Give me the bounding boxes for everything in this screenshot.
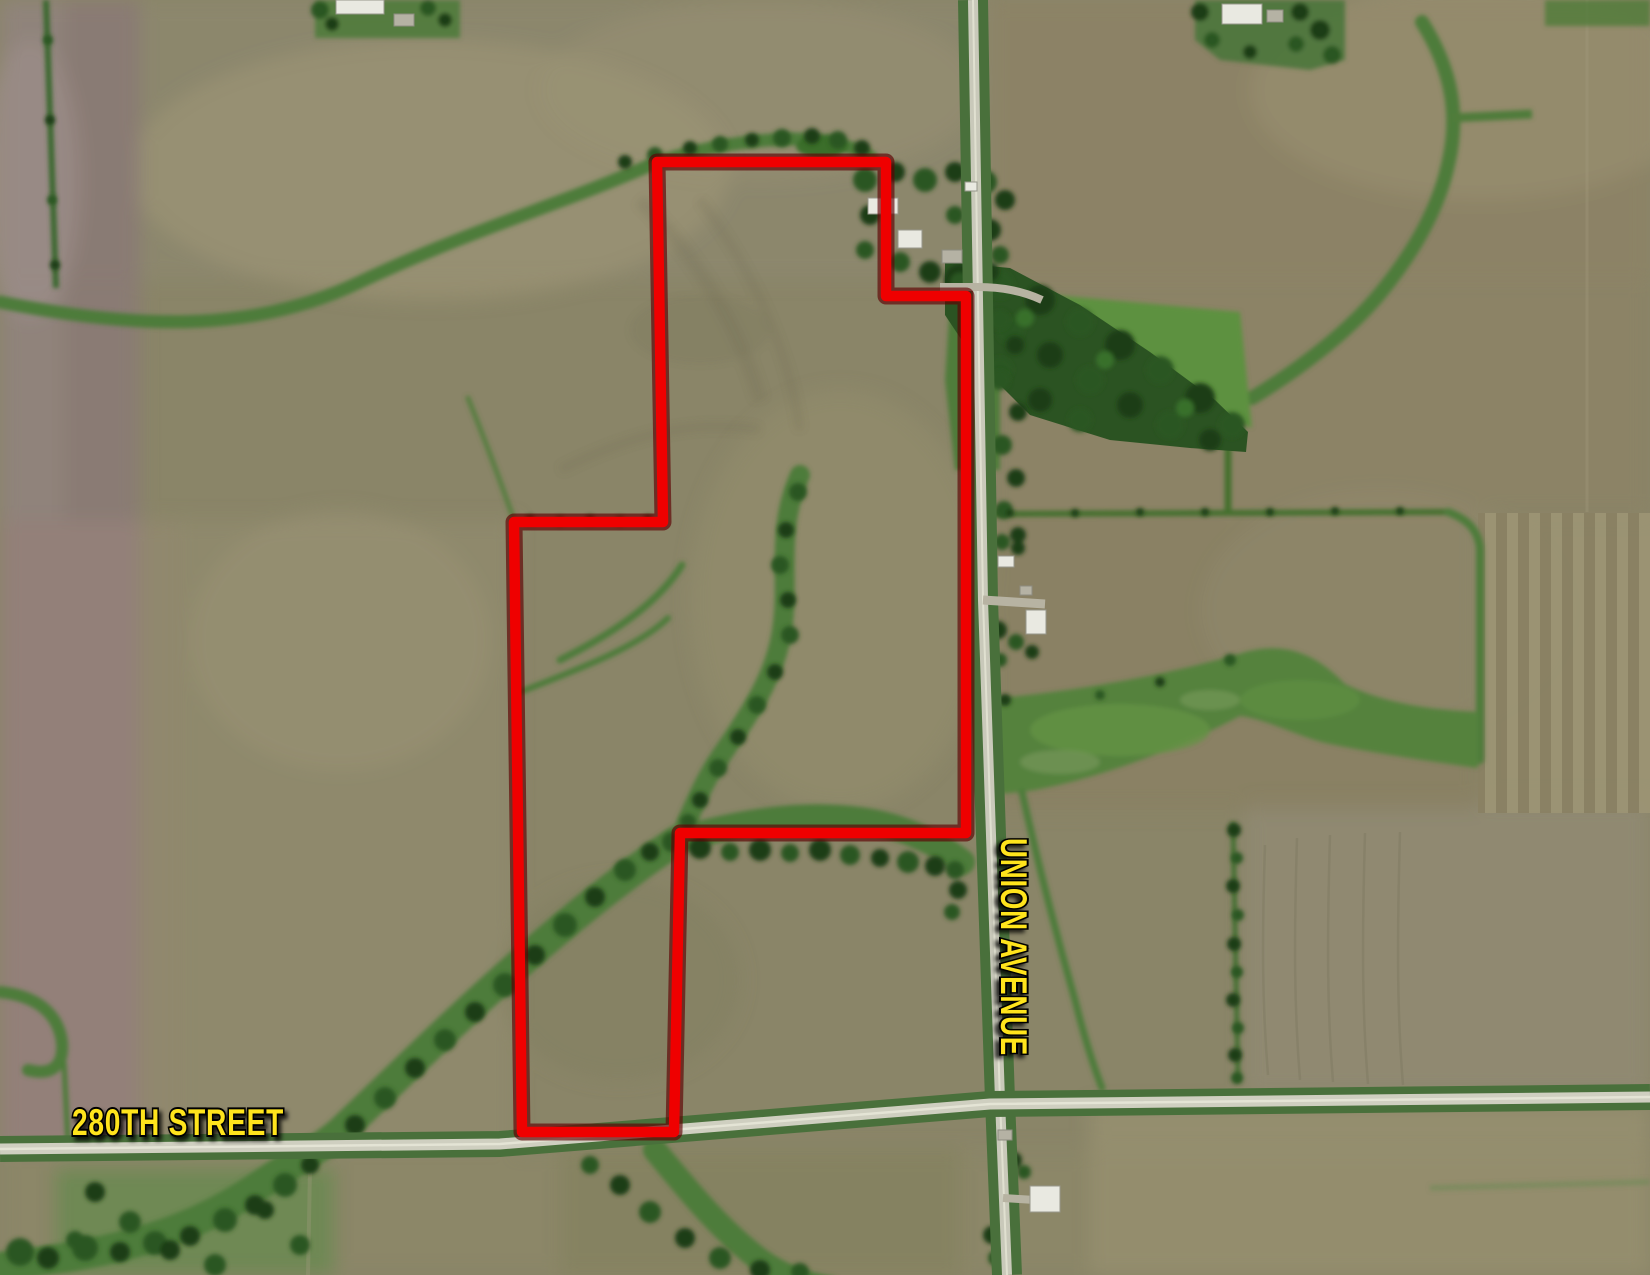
building — [336, 0, 384, 14]
building — [1222, 4, 1262, 24]
building — [998, 556, 1014, 567]
aerial-imagery: .t1{fill:#1e3e18}.t2{fill:#2b5722}.t3{fi… — [0, 0, 1650, 1275]
building — [1030, 1186, 1060, 1212]
building — [1020, 586, 1032, 595]
building — [942, 250, 962, 263]
road-label-280th-street: 280TH STREET — [72, 1102, 284, 1143]
road-label-union-avenue: UNION AVENUE — [993, 838, 1034, 1056]
building — [898, 230, 922, 248]
building — [1267, 10, 1283, 22]
striped-field — [1478, 513, 1650, 813]
building — [998, 1130, 1012, 1140]
aerial-map: .t1{fill:#1e3e18}.t2{fill:#2b5722}.t3{fi… — [0, 0, 1650, 1275]
building — [965, 182, 977, 191]
building — [1026, 610, 1046, 634]
building — [394, 14, 414, 26]
